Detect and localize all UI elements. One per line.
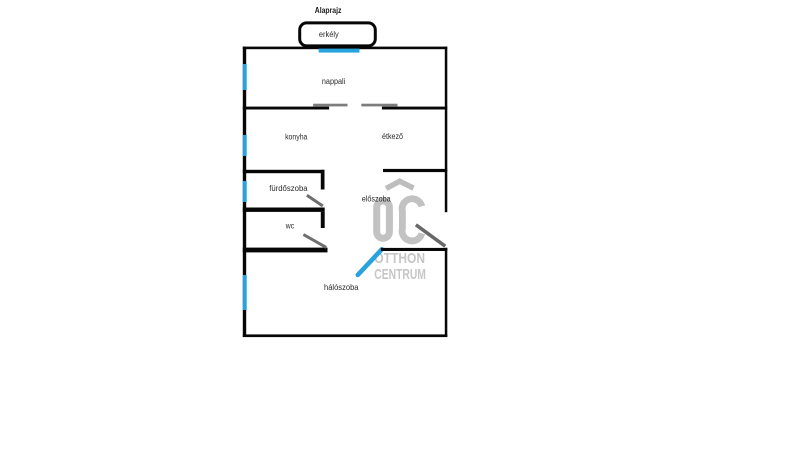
svg-text:konyha: konyha bbox=[285, 133, 308, 142]
svg-text:fürdőszoba: fürdőszoba bbox=[269, 184, 308, 193]
svg-text:Alaprajz: Alaprajz bbox=[315, 5, 342, 15]
svg-text:OTTHON: OTTHON bbox=[374, 250, 425, 267]
svg-text:hálószoba: hálószoba bbox=[324, 283, 359, 292]
svg-text:erkély: erkély bbox=[319, 30, 339, 39]
svg-text:wc: wc bbox=[285, 221, 294, 230]
svg-text:nappali: nappali bbox=[322, 77, 346, 86]
svg-text:CENTRUM: CENTRUM bbox=[374, 266, 426, 283]
svg-text:előszoba: előszoba bbox=[362, 195, 391, 204]
svg-text:étkező: étkező bbox=[382, 132, 403, 141]
